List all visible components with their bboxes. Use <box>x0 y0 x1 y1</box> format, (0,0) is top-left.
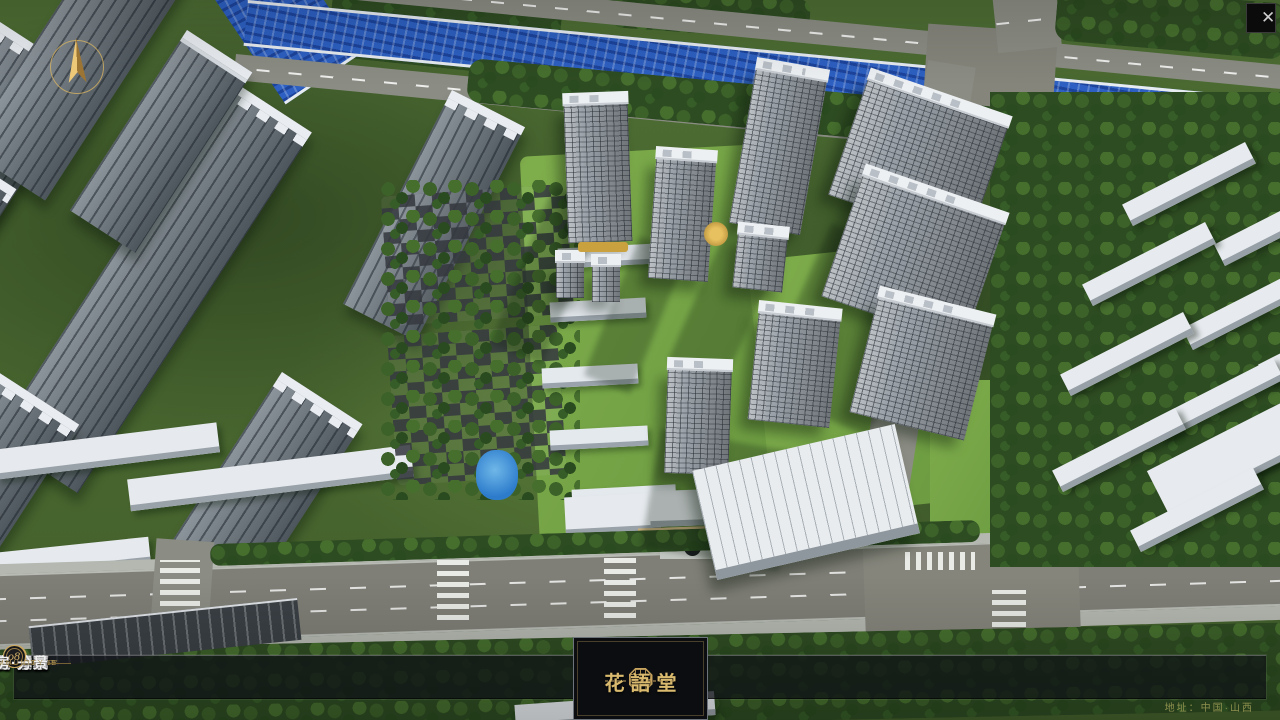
residential-tower <box>664 369 732 475</box>
landscape-pool <box>476 450 518 500</box>
brand-logo[interactable]: 花語堂 <box>573 637 708 720</box>
crosswalk <box>160 560 200 606</box>
residential-tower <box>564 103 633 243</box>
nav-caption: COMMUNITY <box>0 660 60 667</box>
residential-tower <box>732 234 787 293</box>
close-button[interactable]: ✕ <box>1246 3 1276 33</box>
crosswalk <box>905 552 975 570</box>
close-icon: ✕ <box>1261 4 1275 32</box>
shuttle-bus <box>578 242 628 252</box>
residential-tower <box>648 158 716 282</box>
project-address: 地址：中国·山西 <box>1165 699 1254 714</box>
north-cross-road <box>992 0 1062 53</box>
midrise-building <box>592 266 620 302</box>
compass-north-icon <box>44 34 110 100</box>
gold-ring-sculpture <box>704 222 728 246</box>
crosswalk <box>437 560 469 620</box>
crosswalk <box>604 558 636 618</box>
midrise-building <box>556 262 584 298</box>
residential-tower <box>748 312 841 428</box>
brand-subtitle-line <box>605 680 677 682</box>
presentation-app: ✕ o1 品牌·介绍 BRAND SUPPORT o2 区位·价值 LOCATI… <box>0 0 1280 720</box>
